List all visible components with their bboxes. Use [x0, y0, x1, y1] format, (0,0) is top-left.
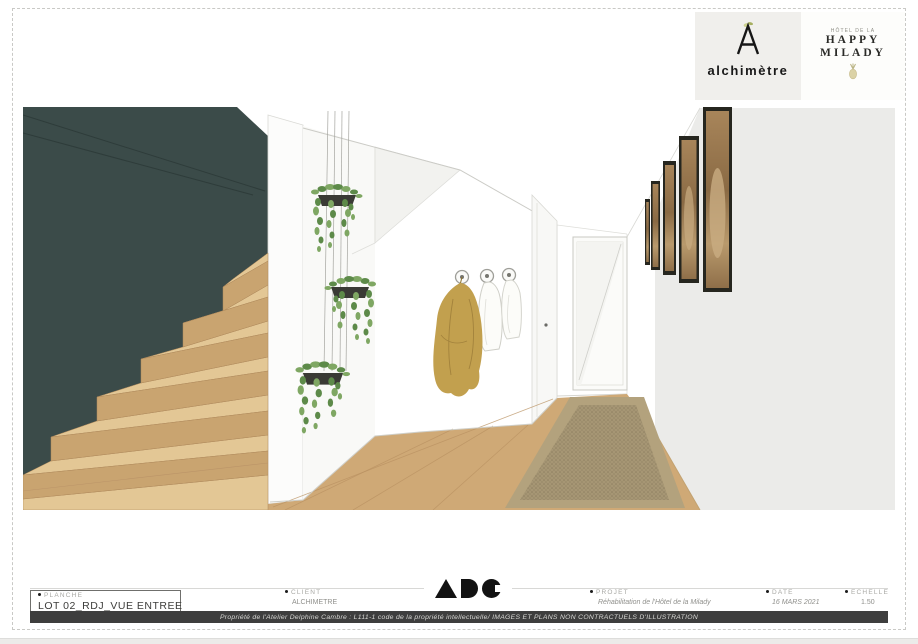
far-door [573, 237, 627, 390]
rendering-svg [23, 103, 895, 510]
echelle-label: ECHELLE [851, 589, 889, 596]
client-value: ALCHIMETRE [292, 599, 337, 606]
echelle-value: 1.50 [861, 599, 889, 606]
field-date: DATE 16 MARS 2021 [766, 589, 819, 606]
happy-milady-logo-card: HÔTEL DE LA HAPPY MILADY [801, 12, 905, 100]
field-bullet [38, 593, 41, 596]
field-bullet [590, 590, 593, 593]
adc-logo [424, 575, 512, 601]
adc-letter-d [461, 579, 478, 598]
white-garments [479, 280, 522, 351]
field-planche: PLANCHE LOT 02_RDJ_VUE ENTREE [30, 590, 181, 612]
framed-artwork-gallery [645, 107, 732, 292]
projet-label: PROJET [596, 589, 629, 596]
field-echelle: ECHELLE 1.50 [845, 589, 889, 606]
window-edge-strip [0, 638, 918, 644]
copyright-text: Propriété de l'Atelier Delphine Cambre :… [220, 614, 698, 621]
mustard-coat [433, 277, 482, 396]
adc-letter-a [435, 579, 457, 598]
date-value: 16 MARS 2021 [772, 599, 819, 606]
alchimetre-wordmark: alchimètre [707, 63, 788, 78]
adc-letter-c [482, 579, 501, 598]
door-handle [544, 323, 547, 326]
field-projet: PROJET Réhabilitation de l'Hôtel de la M… [590, 589, 711, 606]
field-bullet [845, 590, 848, 593]
planche-label: PLANCHE [44, 592, 83, 599]
client-label: CLIENT [291, 589, 321, 596]
date-label: DATE [772, 589, 794, 596]
field-bullet [766, 590, 769, 593]
side-door [532, 195, 557, 424]
alchimetre-logo-card: alchimètre [695, 12, 801, 100]
happy-milady-line2: MILADY [820, 47, 886, 60]
presentation-board: alchimètre HÔTEL DE LA HAPPY MILADY [0, 0, 918, 644]
field-client: CLIENT ALCHIMETRE [285, 589, 337, 606]
happy-milady-line1: HAPPY [826, 34, 881, 47]
projet-value: Réhabilitation de l'Hôtel de la Milady [598, 599, 711, 606]
field-bullet [285, 590, 288, 593]
partition-wall [268, 115, 375, 504]
rendering-entrance-view [23, 103, 895, 510]
alchimetre-a-monogram-icon [726, 21, 770, 59]
pineapple-icon [847, 63, 859, 80]
copyright-bar: Propriété de l'Atelier Delphine Cambre :… [30, 611, 888, 623]
